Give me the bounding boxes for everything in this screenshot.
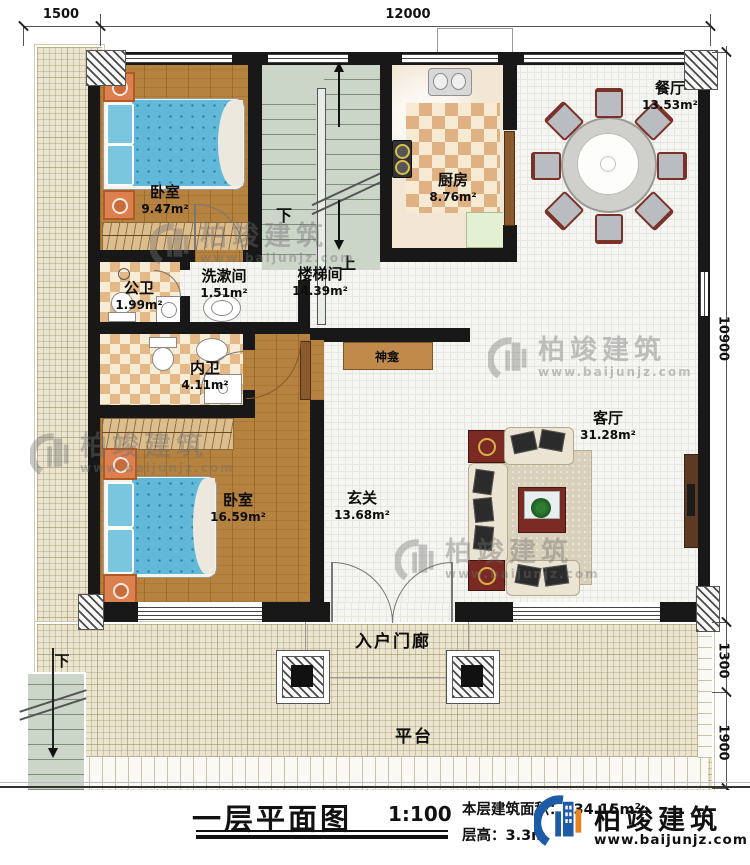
wall: [262, 602, 330, 622]
outdoor-stair-arrow-icon: [48, 748, 58, 758]
stair-arrow-line: [338, 72, 340, 127]
dimension-label-1300: 1300: [716, 634, 731, 688]
wall: [88, 250, 195, 262]
stair-arrow-up-icon: [334, 62, 344, 72]
sofa-cushion: [473, 497, 494, 523]
wardrobe: [102, 418, 234, 450]
window: [524, 54, 686, 63]
pillow: [106, 103, 134, 145]
dimension-label-10900: 10900: [716, 312, 731, 366]
wall: [503, 52, 517, 130]
dimension-ext: [710, 14, 711, 46]
corner-column: [78, 594, 104, 630]
pillow: [106, 528, 134, 574]
porch-column-core: [291, 665, 313, 687]
plant-icon: [531, 498, 551, 518]
stair-arrow-down-icon: [334, 240, 344, 250]
titleblock-separator: [0, 786, 750, 788]
dimension-label-12000: 12000: [368, 7, 448, 22]
title-underline: [196, 835, 448, 839]
toilet: [152, 347, 174, 371]
title-block: 一层平面图 1:100 本层建筑面积：134.15m² 层高：3.3m 柏竣建筑…: [0, 790, 750, 865]
nightstand: [103, 190, 135, 220]
brand-logo-icon: [534, 794, 588, 850]
side-table-ring: [478, 567, 496, 585]
wall: [698, 52, 710, 622]
room-label-porch: 入户门廊: [355, 632, 431, 652]
side-table-ring: [478, 438, 496, 456]
platform-edge-band: [37, 756, 708, 789]
dimension-label-1900: 1900: [716, 716, 731, 770]
wardrobe-rail: [102, 432, 232, 433]
outdoor-stair-down-label: 下: [54, 650, 69, 671]
room-label-bedroom-2: 卧室 16.59m²: [210, 492, 266, 524]
outdoor-stair: [26, 672, 86, 792]
floor-plan-page: 下 下 上: [0, 0, 750, 865]
brand-url: www.baijunjz.com: [594, 832, 748, 848]
door-leaf: [331, 562, 333, 622]
window: [402, 54, 498, 63]
dining-chair: [595, 88, 623, 118]
wall: [248, 65, 262, 262]
dining-chair: [657, 152, 687, 180]
room-label-inner-bath: 内卫 4.11m²: [181, 360, 228, 392]
platform-edge-right: [698, 626, 712, 758]
corner-column: [86, 50, 126, 86]
room-label-foyer: 玄关 13.68m²: [334, 490, 390, 522]
dimension-line-top: [23, 26, 711, 27]
door-threshold: [195, 250, 243, 262]
drawing-scale: 1:100: [388, 802, 452, 826]
wall: [503, 225, 517, 262]
dimension-label-1500: 1500: [31, 7, 91, 22]
door-leaf: [504, 131, 515, 226]
room-label-public-bath: 公卫 1.99m²: [115, 280, 162, 312]
door-threshold: [310, 340, 324, 400]
bed-sheet-fold: [218, 100, 243, 186]
room-label-washroom: 洗漱间 1.51m²: [200, 268, 247, 300]
sofa-cushion: [539, 429, 566, 452]
room-label-shrine: 神龛: [375, 347, 399, 366]
dining-table-center: [600, 156, 616, 172]
room-label-kitchen: 厨房 8.76m²: [429, 172, 476, 204]
stove-burner: [395, 144, 410, 159]
wall: [380, 52, 392, 262]
room-label-bedroom-1: 卧室 9.47m²: [141, 184, 188, 216]
wall: [310, 400, 324, 602]
dimension-ext: [23, 26, 24, 46]
corner-column: [696, 586, 720, 632]
stair-treads-left: [262, 95, 316, 255]
dining-chair: [531, 152, 561, 180]
sink-basin: [433, 73, 448, 90]
window: [700, 272, 708, 316]
wall: [380, 248, 517, 262]
fridge: [466, 212, 504, 248]
door-leaf: [451, 562, 453, 622]
window: [513, 604, 660, 620]
toilet-tank: [108, 312, 136, 322]
wall: [88, 322, 310, 334]
window: [138, 604, 262, 620]
sofa-cushion: [473, 525, 494, 551]
tv-icon: [687, 484, 695, 516]
window: [120, 54, 232, 63]
wall: [180, 296, 190, 322]
wall: [243, 250, 262, 262]
sink-basin: [451, 73, 466, 90]
washing-machine-door: [161, 302, 177, 318]
stair-treads-right: [324, 65, 380, 215]
dining-chair: [595, 214, 623, 244]
nightstand: [103, 448, 137, 480]
dimension-ext: [100, 14, 101, 46]
sofa-cushion: [543, 564, 569, 586]
sofa-cushion: [515, 564, 542, 587]
pillow: [106, 144, 134, 186]
titleblock-separator: [0, 782, 750, 783]
wall: [455, 602, 513, 622]
stove-burner: [395, 160, 410, 175]
pillow: [106, 482, 134, 528]
room-label-stairwell: 楼梯间 14.39m²: [292, 266, 348, 298]
room-label-platform: 平台: [395, 727, 433, 747]
title-underline: [196, 830, 448, 832]
room-label-dining: 餐厅 13.53m²: [642, 80, 698, 112]
wash-basin-bowl: [211, 300, 233, 316]
wall: [100, 405, 255, 418]
porch-column-core: [461, 665, 483, 687]
wall: [310, 328, 470, 342]
sofa-cushion: [472, 469, 494, 495]
door-leaf: [300, 341, 311, 400]
wall: [88, 52, 100, 622]
room-label-living: 客厅 31.28m²: [580, 410, 636, 442]
stair-down-label: 下: [276, 202, 292, 226]
wall: [180, 262, 190, 270]
stair-arrow-line: [338, 200, 340, 242]
